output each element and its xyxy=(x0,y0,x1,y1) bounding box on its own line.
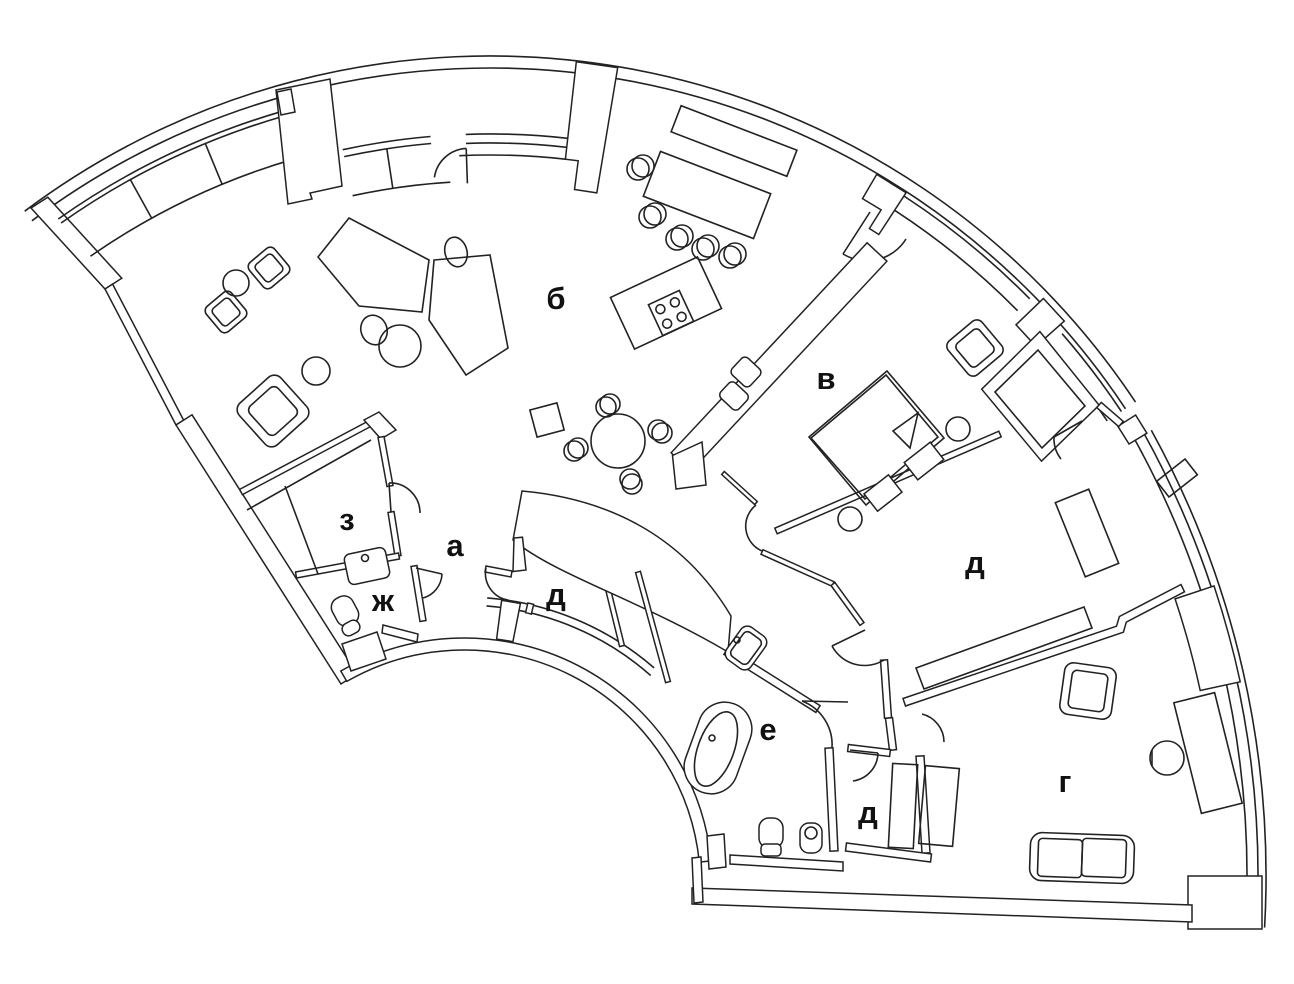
svg-text:б: б xyxy=(546,281,565,316)
svg-text:е: е xyxy=(759,712,776,747)
svg-text:д: д xyxy=(965,545,985,580)
svg-text:д: д xyxy=(858,795,878,830)
svg-text:а: а xyxy=(446,528,464,563)
svg-text:ж: ж xyxy=(371,583,395,618)
svg-text:з: з xyxy=(339,502,354,537)
svg-text:д: д xyxy=(546,577,566,612)
svg-text:в: в xyxy=(816,361,835,396)
svg-text:г: г xyxy=(1059,764,1072,799)
